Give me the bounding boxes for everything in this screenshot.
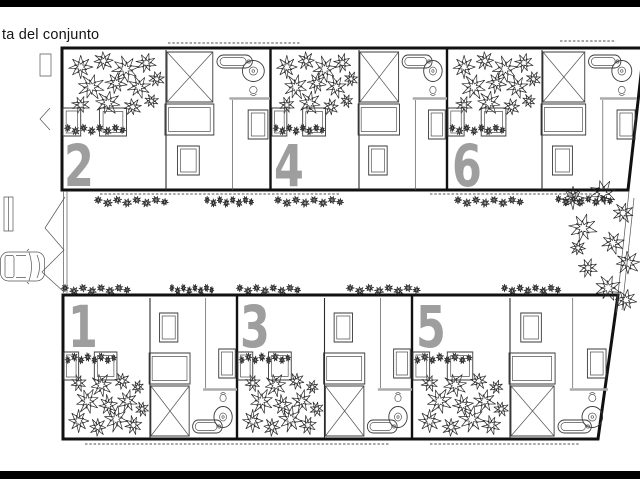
site-plan-drawing: 2 4 6 1 3 5 bbox=[0, 0, 640, 480]
unit-2-number: 2 bbox=[64, 134, 94, 201]
boundary-chevron bbox=[40, 108, 50, 130]
unit-3-number: 3 bbox=[240, 295, 270, 362]
car-icon bbox=[1, 249, 45, 284]
gate-chevron-icon bbox=[42, 197, 65, 292]
hedge-icon bbox=[94, 195, 169, 210]
hedge-icon bbox=[555, 194, 613, 209]
unit-5-number: 5 bbox=[416, 295, 446, 362]
unit-1-number: 1 bbox=[68, 295, 98, 362]
hedge-icon bbox=[204, 195, 254, 210]
utility-post bbox=[4, 197, 13, 231]
bottom-row-building-outline bbox=[63, 295, 618, 439]
unit-6-number: 6 bbox=[452, 134, 482, 201]
page: ta del conjunto bbox=[0, 0, 640, 480]
meter-box bbox=[40, 54, 51, 76]
unit-4-number: 4 bbox=[274, 134, 304, 201]
